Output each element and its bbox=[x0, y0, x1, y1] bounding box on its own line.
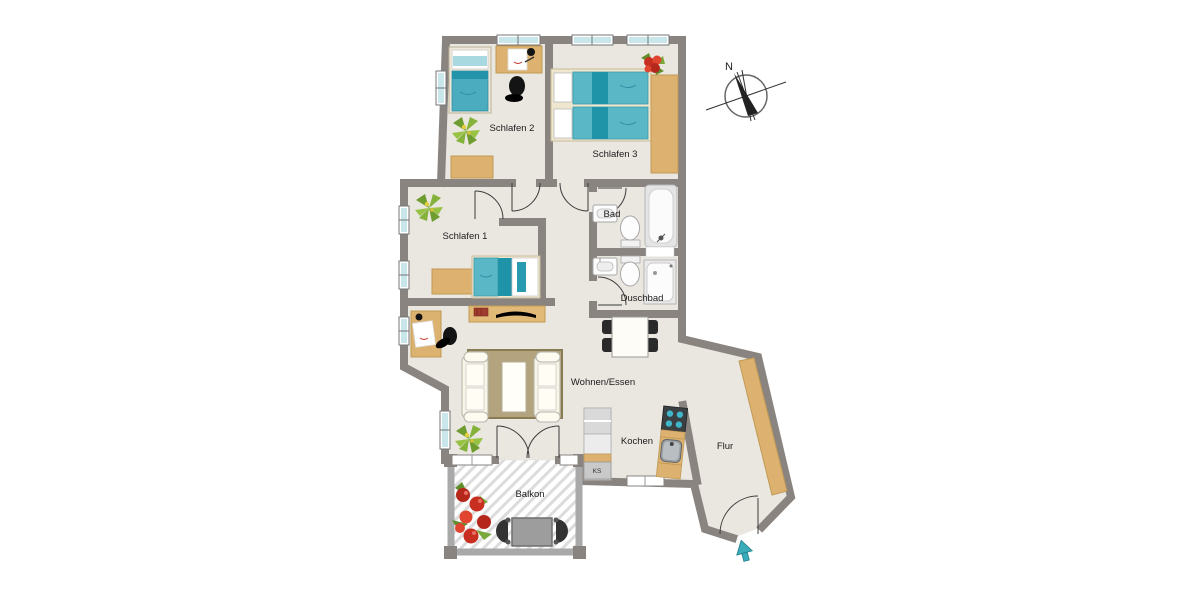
floor-plan-page: KS bbox=[0, 0, 1200, 600]
label-balkon: Balkon bbox=[515, 489, 544, 500]
desk bbox=[496, 46, 542, 73]
label-kochen: Kochen bbox=[621, 436, 653, 447]
window-schlafen2-top bbox=[497, 35, 540, 45]
balcony-post bbox=[444, 546, 457, 559]
coffee-table bbox=[502, 362, 526, 412]
work-desk bbox=[411, 311, 441, 357]
sofa-right bbox=[534, 352, 560, 422]
window-balcony-left bbox=[452, 455, 492, 465]
balcony-table bbox=[512, 518, 552, 546]
window-schlafen3-top-2 bbox=[627, 35, 669, 45]
label-bad: Bad bbox=[604, 209, 621, 220]
entrance-arrow bbox=[733, 538, 754, 562]
floor-plan-drawing: KS bbox=[0, 0, 1200, 600]
tv-sideboard bbox=[469, 306, 545, 322]
window-wohnen-left bbox=[440, 411, 450, 449]
dresser bbox=[451, 156, 493, 178]
stove bbox=[661, 406, 687, 432]
window-workarea-left bbox=[399, 317, 409, 345]
single-bed bbox=[449, 47, 491, 113]
wall-schlafen2-left bbox=[441, 40, 446, 183]
north-label: N bbox=[725, 61, 733, 73]
sideboard bbox=[432, 269, 474, 294]
kitchen-left-column: KS bbox=[584, 408, 611, 480]
label-duschbad: Duschbad bbox=[621, 293, 664, 304]
window-kitchen-bottom bbox=[627, 476, 664, 486]
dining-table bbox=[612, 317, 648, 357]
bath-shelf bbox=[646, 247, 674, 257]
compass: N bbox=[706, 61, 786, 121]
toilet bbox=[621, 216, 641, 247]
window-schlafen1-left-1 bbox=[399, 206, 409, 234]
north-needle bbox=[734, 73, 758, 116]
wardrobe bbox=[651, 75, 678, 173]
window-schlafen2-left bbox=[436, 71, 446, 105]
label-schlafen1: Schlafen 1 bbox=[443, 231, 488, 242]
kitchen-sink bbox=[658, 437, 685, 465]
double-bed bbox=[551, 69, 651, 141]
toilet bbox=[621, 256, 641, 286]
label-flur: Flur bbox=[717, 441, 733, 452]
single-bed bbox=[472, 256, 540, 298]
window-balcony-right bbox=[560, 455, 578, 465]
label-wohnen-essen: Wohnen/Essen bbox=[571, 377, 635, 388]
balcony-post bbox=[573, 546, 586, 559]
sofa-left bbox=[462, 352, 488, 422]
label-schlafen3: Schlafen 3 bbox=[593, 149, 638, 160]
fridge-label: KS bbox=[593, 468, 602, 475]
sink bbox=[593, 258, 617, 275]
label-schlafen2: Schlafen 2 bbox=[490, 123, 535, 134]
window-schlafen3-top-1 bbox=[572, 35, 613, 45]
bathtub bbox=[645, 185, 677, 247]
window-schlafen1-left-2 bbox=[399, 261, 409, 289]
